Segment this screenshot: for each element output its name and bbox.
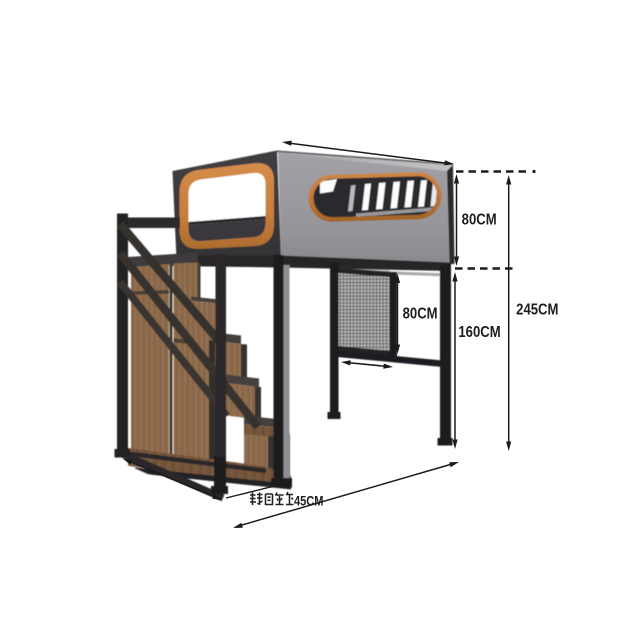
svg-text:80CM: 80CM xyxy=(403,305,438,322)
svg-text:80CM: 80CM xyxy=(462,211,497,228)
svg-text:245CM: 245CM xyxy=(516,301,558,318)
svg-text:160CM: 160CM xyxy=(458,324,500,341)
svg-text:45CM: 45CM xyxy=(294,493,323,508)
